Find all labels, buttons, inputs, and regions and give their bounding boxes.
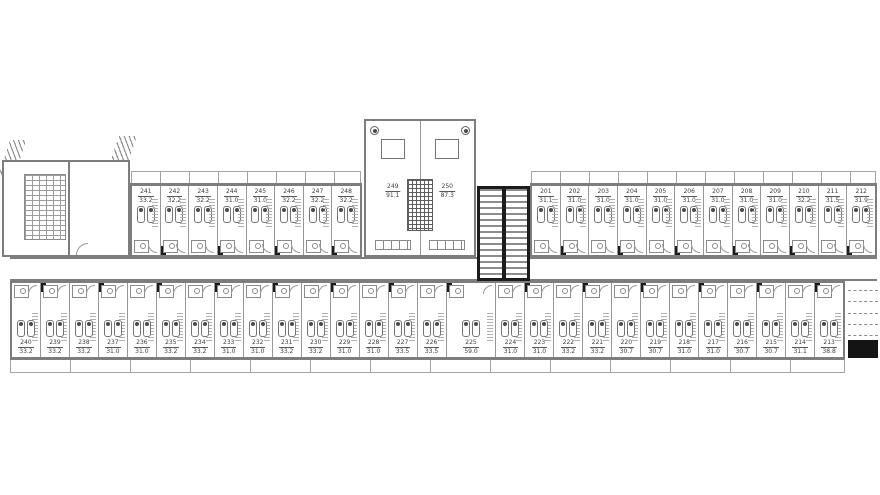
beds-icon xyxy=(820,320,838,337)
bed-icon xyxy=(852,206,860,223)
room-unit: 229 31.0 xyxy=(331,283,360,357)
room-number: 203 xyxy=(595,188,610,197)
room-unit: 222 33.2 xyxy=(554,283,583,357)
bed-icon xyxy=(223,206,231,223)
kitchen-counter xyxy=(375,240,411,250)
toilet-icon xyxy=(683,243,689,249)
room-area: 32.2 xyxy=(282,197,295,205)
room-unit: 227 33.5 xyxy=(389,283,418,357)
bathroom xyxy=(72,285,87,298)
door-arc-icon xyxy=(434,285,443,294)
closet-hatch xyxy=(781,199,787,227)
closet-hatch xyxy=(180,199,186,227)
room-area: 31.0 xyxy=(625,197,638,205)
room-unit: 205 31.0 xyxy=(647,186,676,255)
room-unit: 208 31.0 xyxy=(733,186,762,255)
toilet-icon xyxy=(597,243,603,249)
room-area: 33.2 xyxy=(48,348,61,356)
toilet-icon xyxy=(620,288,626,294)
beds-icon xyxy=(559,320,577,337)
door-arc-icon xyxy=(834,244,843,253)
closet-hatch xyxy=(209,199,215,227)
room-area: 31.5 xyxy=(826,197,839,205)
toilet-icon xyxy=(340,243,346,249)
toilet-icon xyxy=(78,288,84,294)
room-unit: 231 33.2 xyxy=(273,283,302,357)
toilet-icon xyxy=(426,288,432,294)
door-arc-icon xyxy=(512,285,521,294)
toilet-icon xyxy=(49,288,55,294)
wing-bottom: 240 33.2 239 33.2 xyxy=(10,281,845,360)
room-unit: 228 31.0 xyxy=(360,283,389,357)
bed-icon xyxy=(346,320,354,337)
door-arc-icon xyxy=(76,243,88,255)
door-arc-icon xyxy=(548,244,557,253)
toilet-icon xyxy=(252,288,258,294)
beds-icon xyxy=(733,320,751,337)
center-units: 249 91.1 250 87.3 xyxy=(364,119,476,257)
toilet-icon xyxy=(649,288,655,294)
room-number: 202 xyxy=(567,188,582,197)
room-unit: 233 31.0 xyxy=(215,283,244,357)
room-unit: 220 30.7 xyxy=(612,283,641,357)
room-number: 241 xyxy=(138,188,153,197)
bed-icon xyxy=(220,320,228,337)
beds-icon xyxy=(501,320,519,337)
room-unit: 223 31.0 xyxy=(525,283,554,357)
door-arc-icon xyxy=(831,285,840,294)
bed-icon xyxy=(307,320,315,337)
room-label: 225 59.0 xyxy=(463,339,478,355)
room-area: 31.0 xyxy=(707,348,720,356)
bathroom xyxy=(817,285,832,298)
room-area: 31.1 xyxy=(539,197,552,205)
floor-plan: 241 33.2 242 32.2 xyxy=(0,0,880,495)
bathroom xyxy=(620,240,635,253)
door-arc-icon xyxy=(173,285,182,294)
toilet-icon xyxy=(169,243,175,249)
room-label: 214 31.1 xyxy=(792,339,807,355)
room-area: 31.0 xyxy=(654,197,667,205)
closet-hatch xyxy=(638,199,644,227)
room-area: 31.9 xyxy=(855,197,868,205)
closet-hatch xyxy=(666,199,672,227)
toilet-icon xyxy=(283,243,289,249)
room-area: 33.2 xyxy=(280,348,293,356)
closet-hatch xyxy=(238,199,244,227)
room-label: 228 31.0 xyxy=(366,339,381,355)
room-unit: 214 31.1 xyxy=(786,283,815,357)
room-number: 244 xyxy=(224,188,239,197)
room-number: 247 xyxy=(310,188,325,197)
room-unit: 212 31.9 xyxy=(847,186,875,255)
room-unit: 241 33.2 xyxy=(132,186,161,255)
bed-icon xyxy=(511,320,519,337)
armchair-icon xyxy=(461,126,470,135)
bathroom xyxy=(498,285,513,298)
room-area: 59.0 xyxy=(464,348,477,356)
bed-icon xyxy=(381,139,405,159)
door-arc-icon xyxy=(570,285,579,294)
bathroom xyxy=(43,285,58,298)
bed-icon xyxy=(627,320,635,337)
toilet-icon xyxy=(827,243,833,249)
room-area: 38.8 xyxy=(822,348,835,356)
bed-icon xyxy=(766,206,774,223)
room-label: 231 33.2 xyxy=(279,339,294,355)
toilet-icon xyxy=(794,288,800,294)
room-label: 219 30.7 xyxy=(648,339,663,355)
bed-icon xyxy=(114,320,122,337)
bed-icon xyxy=(462,320,470,337)
toilet-icon xyxy=(255,243,261,249)
bed-icon xyxy=(820,320,828,337)
bathroom xyxy=(188,285,203,298)
toilet-icon xyxy=(678,288,684,294)
toilet-icon xyxy=(165,288,171,294)
toilet-icon xyxy=(823,288,829,294)
room-area: 32.2 xyxy=(797,197,810,205)
room-label: 216 30.7 xyxy=(734,339,749,355)
room-number: 249 xyxy=(385,183,400,192)
dashed-line xyxy=(848,313,878,314)
bed-icon xyxy=(280,206,288,223)
toilet-icon xyxy=(765,288,771,294)
bed-icon xyxy=(714,320,722,337)
bed-icon xyxy=(824,206,832,223)
beds-icon xyxy=(307,320,325,337)
dashed-line xyxy=(848,290,878,291)
beds-icon xyxy=(220,320,238,337)
closet-hatch xyxy=(552,199,558,227)
door-arc-icon xyxy=(347,285,356,294)
toilet-icon xyxy=(707,288,713,294)
bed-icon xyxy=(656,320,664,337)
door-arc-icon xyxy=(260,285,269,294)
room-label: 234 33.2 xyxy=(192,339,207,355)
room-unit: 210 32.2 xyxy=(790,186,819,255)
bed-icon xyxy=(598,320,606,337)
toilet-icon xyxy=(281,288,287,294)
room-area: 31.0 xyxy=(678,348,691,356)
bed-icon xyxy=(17,320,25,337)
bed-icon xyxy=(569,320,577,337)
beds-icon xyxy=(646,320,664,337)
door-arc-icon xyxy=(115,285,124,294)
room-area: 31.0 xyxy=(711,197,724,205)
bed-icon xyxy=(365,320,373,337)
door-arc-icon xyxy=(605,244,614,253)
bed-icon xyxy=(623,206,631,223)
beds-icon xyxy=(191,320,209,337)
door-arc-icon xyxy=(806,244,815,253)
bed-icon xyxy=(85,320,93,337)
door-arc-icon xyxy=(483,285,492,294)
bed-icon xyxy=(537,206,545,223)
bed-icon xyxy=(56,320,64,337)
bed-icon xyxy=(566,206,574,223)
beds-icon xyxy=(133,320,151,337)
room-area: 33.2 xyxy=(562,348,575,356)
toilet-icon xyxy=(339,288,345,294)
door-arc-icon xyxy=(777,244,786,253)
bed-icon xyxy=(617,320,625,337)
room-area: 32.2 xyxy=(340,197,353,205)
room-unit: 206 31.0 xyxy=(675,186,704,255)
door-arc-icon xyxy=(715,285,724,294)
bed-icon xyxy=(201,320,209,337)
room-unit: 201 31.1 xyxy=(532,186,561,255)
toilet-icon xyxy=(20,288,26,294)
toilet-icon xyxy=(397,288,403,294)
door-arc-icon xyxy=(541,285,550,294)
bed-icon xyxy=(472,320,480,337)
room-unit: 224 31.0 xyxy=(496,283,525,357)
toilet-icon xyxy=(855,243,861,249)
beds-icon xyxy=(530,320,548,337)
closet-hatch xyxy=(609,199,615,227)
room-unit: 204 31.0 xyxy=(618,186,647,255)
bed-icon xyxy=(309,206,317,223)
room-area: 31.0 xyxy=(225,197,238,205)
bathroom xyxy=(275,285,290,298)
staircase xyxy=(24,174,66,240)
room-number: 208 xyxy=(739,188,754,197)
bathroom xyxy=(333,285,348,298)
dashed-line xyxy=(848,324,878,325)
closet-hatch xyxy=(487,313,493,341)
room-label: 227 33.5 xyxy=(395,339,410,355)
room-number: 250 xyxy=(440,183,455,192)
bed-icon xyxy=(104,320,112,337)
beds-icon xyxy=(675,320,693,337)
armchair-icon xyxy=(370,126,379,135)
bathroom xyxy=(391,285,406,298)
toilet-icon xyxy=(769,243,775,249)
bathroom xyxy=(246,285,261,298)
bed-icon xyxy=(317,320,325,337)
bed-icon xyxy=(46,320,54,337)
bathroom xyxy=(643,285,658,298)
beds-icon xyxy=(365,320,383,337)
room-area: 32.2 xyxy=(196,197,209,205)
room-number: 248 xyxy=(338,188,353,197)
beds-icon xyxy=(462,320,480,337)
bed-icon xyxy=(433,320,441,337)
bathroom xyxy=(249,240,264,253)
door-arc-icon xyxy=(748,244,757,253)
room-area: 33.2 xyxy=(139,197,152,205)
wall-divider xyxy=(68,162,70,255)
room-area: 31.0 xyxy=(135,348,148,356)
bathroom xyxy=(677,240,692,253)
bathroom xyxy=(134,240,149,253)
room-unit: 244 31.0 xyxy=(218,186,247,255)
door-arc-icon xyxy=(744,285,753,294)
room-unit: 225 59.0 xyxy=(447,283,497,357)
bathroom xyxy=(304,285,319,298)
door-arc-icon xyxy=(231,285,240,294)
room-label: 222 33.2 xyxy=(561,339,576,355)
room-unit: 203 31.0 xyxy=(589,186,618,255)
bed-icon xyxy=(646,320,654,337)
room-unit: 232 31.0 xyxy=(244,283,273,357)
beds-icon xyxy=(46,320,64,337)
bathroom xyxy=(420,285,435,298)
bathroom xyxy=(614,285,629,298)
door-arc-icon xyxy=(289,285,298,294)
room-label: 239 33.2 xyxy=(47,339,62,355)
room-area: 33.5 xyxy=(425,348,438,356)
room-number: 243 xyxy=(195,188,210,197)
room-number: 205 xyxy=(653,188,668,197)
bed-icon xyxy=(194,206,202,223)
bathroom xyxy=(527,285,542,298)
door-arc-icon xyxy=(405,285,414,294)
beds-icon xyxy=(249,320,267,337)
room-label: 232 31.0 xyxy=(250,339,265,355)
closet-hatch xyxy=(695,199,701,227)
bed-icon xyxy=(27,320,35,337)
bed-icon xyxy=(259,320,267,337)
left-stair-block xyxy=(2,160,130,257)
closet-hatch xyxy=(838,199,844,227)
room-area: 30.7 xyxy=(764,348,777,356)
bed-icon xyxy=(704,320,712,337)
bed-icon xyxy=(772,320,780,337)
room-label: 220 30.7 xyxy=(619,339,634,355)
bed-icon xyxy=(336,320,344,337)
dashed-lines xyxy=(848,290,878,336)
room-area: 33.2 xyxy=(591,348,604,356)
toilet-icon xyxy=(194,288,200,294)
room-area: 31.0 xyxy=(683,197,696,205)
closet-hatch xyxy=(724,199,730,227)
room-area: 31.0 xyxy=(367,348,380,356)
bed-icon xyxy=(795,206,803,223)
door-arc-icon xyxy=(28,285,37,294)
room-area: 91.1 xyxy=(386,192,399,200)
wing-top-right: 201 31.1 202 31.0 xyxy=(530,183,877,257)
room-area: 31.0 xyxy=(597,197,610,205)
room-label: 250 87.3 xyxy=(440,183,455,199)
toilet-icon xyxy=(655,243,661,249)
bed-icon xyxy=(288,320,296,337)
toilet-icon xyxy=(741,243,747,249)
room-number: 212 xyxy=(854,188,869,197)
room-area: 33.2 xyxy=(77,348,90,356)
shaft-fill xyxy=(848,340,878,358)
bathroom xyxy=(217,285,232,298)
toilet-icon xyxy=(312,243,318,249)
toilet-icon xyxy=(626,243,632,249)
shaft-hatch xyxy=(407,179,433,231)
closet-hatch xyxy=(580,199,586,227)
dashed-line xyxy=(848,335,878,336)
bed-icon xyxy=(559,320,567,337)
bed-icon xyxy=(137,206,145,223)
door-arc-icon xyxy=(686,285,695,294)
bed-icon xyxy=(791,320,799,337)
room-unit: 247 32.2 xyxy=(304,186,333,255)
bed-icon xyxy=(709,206,717,223)
room-number: 201 xyxy=(538,188,553,197)
bathroom xyxy=(788,285,803,298)
room-label: 221 33.2 xyxy=(590,339,605,355)
bed-icon xyxy=(165,206,173,223)
bed-icon xyxy=(501,320,509,337)
room-area: 87.3 xyxy=(441,192,454,200)
room-area: 31.1 xyxy=(793,348,806,356)
bathroom xyxy=(701,285,716,298)
door-arc-icon xyxy=(691,244,700,253)
bathroom xyxy=(534,240,549,253)
bed-icon xyxy=(540,320,548,337)
room-label: 240 33.2 xyxy=(18,339,33,355)
bathroom xyxy=(849,240,864,253)
room-unit: 240 33.2 xyxy=(12,283,41,357)
room-label: 249 91.1 xyxy=(385,183,400,199)
room-area: 31.0 xyxy=(106,348,119,356)
room-number: 209 xyxy=(767,188,782,197)
room-label: 223 31.0 xyxy=(532,339,547,355)
room-label: 224 31.0 xyxy=(503,339,518,355)
closet-hatch xyxy=(152,199,158,227)
door-arc-icon xyxy=(662,244,671,253)
room-unit: 211 31.5 xyxy=(819,186,848,255)
room-number: 206 xyxy=(681,188,696,197)
stair-core xyxy=(477,186,530,281)
balcony-strip xyxy=(10,360,845,373)
room-unit: 237 31.0 xyxy=(99,283,128,357)
bed-icon xyxy=(404,320,412,337)
beds-icon xyxy=(762,320,780,337)
room-label: 226 33.5 xyxy=(424,339,439,355)
toilet-icon xyxy=(310,288,316,294)
bed-icon xyxy=(394,320,402,337)
room-area: 31.0 xyxy=(504,348,517,356)
room-label: 230 33.2 xyxy=(308,339,323,355)
room-area: 31.0 xyxy=(251,348,264,356)
balcony-strip xyxy=(531,171,876,183)
closet-hatch xyxy=(810,199,816,227)
bed-icon xyxy=(337,206,345,223)
room-number: 211 xyxy=(825,188,840,197)
room-unit: 221 33.2 xyxy=(583,283,612,357)
door-arc-icon xyxy=(376,285,385,294)
bed-icon xyxy=(685,320,693,337)
bed-icon xyxy=(801,320,809,337)
door-arc-icon xyxy=(863,244,872,253)
bathroom xyxy=(730,285,745,298)
bathroom xyxy=(14,285,29,298)
bed-icon xyxy=(594,206,602,223)
bed-icon xyxy=(680,206,688,223)
toilet-icon xyxy=(712,243,718,249)
door-arc-icon xyxy=(576,244,585,253)
door-arc-icon xyxy=(802,285,811,294)
toilet-icon xyxy=(107,288,113,294)
toilet-icon xyxy=(136,288,142,294)
room-number: 207 xyxy=(710,188,725,197)
room-unit: 235 33.2 xyxy=(157,283,186,357)
bed-icon xyxy=(830,320,838,337)
door-arc-icon xyxy=(57,285,66,294)
room-unit: 215 30.7 xyxy=(757,283,786,357)
room-unit: 202 31.0 xyxy=(561,186,590,255)
toilet-icon xyxy=(798,243,804,249)
room-number: 225 xyxy=(463,339,478,348)
